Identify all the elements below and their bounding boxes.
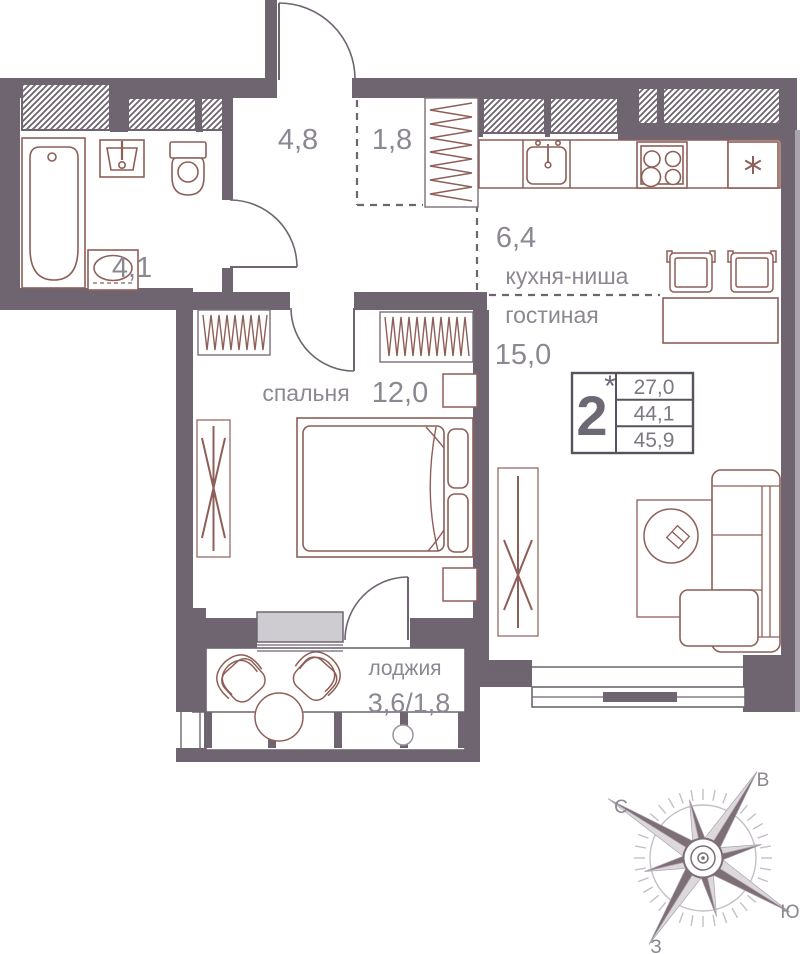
floor-plan-canvas: 2 * 27,0 44,1 45,9 4,1 4,8 1,8 6,4 кухня… — [0, 0, 800, 954]
wardrobe-hangers-icon — [425, 98, 478, 207]
floor-plan: 2 * 27,0 44,1 45,9 4,1 4,8 1,8 6,4 кухня… — [0, 0, 800, 954]
kitchen-label: кухня-ниша — [506, 263, 629, 289]
entrance-door — [279, 3, 355, 80]
bed-icon — [297, 418, 473, 557]
stool-icon — [667, 251, 776, 292]
apartment-stats-box: 2 * 27,0 44,1 45,9 — [572, 370, 693, 453]
rooms-count: 2 — [576, 384, 607, 447]
bathroom-area: 4,1 — [112, 252, 152, 284]
stat-living-area: 27,0 — [634, 376, 675, 399]
sink-icon — [100, 140, 144, 177]
living-label: гостиная — [505, 302, 599, 328]
coffee-table-icon — [644, 509, 698, 563]
wardrobe-hangers-icon — [198, 310, 270, 355]
stove-icon — [637, 142, 687, 188]
fridge-icon — [728, 142, 778, 188]
closet-area: 1,8 — [372, 124, 412, 156]
bathtub-icon — [22, 138, 85, 288]
stat-total-area: 45,9 — [634, 429, 675, 452]
kitchen-sink-icon — [527, 141, 566, 184]
wardrobe-hangers-icon — [380, 312, 473, 362]
loggia-area: 3,6/1,8 — [368, 688, 451, 718]
toilet-icon — [170, 142, 206, 195]
note-mark: * — [604, 370, 616, 403]
hall-area: 4,8 — [278, 124, 318, 156]
drying-rack-icon — [498, 468, 538, 636]
bedroom-door — [291, 308, 354, 371]
sofa-icon — [680, 470, 780, 652]
compass-north: С — [614, 797, 628, 818]
balcony-door — [345, 577, 408, 640]
bedroom-area: 12,0 — [372, 377, 428, 409]
bathroom-door — [230, 200, 297, 267]
loggia-table — [255, 693, 303, 741]
loggia-light — [393, 725, 413, 745]
stat-area-without-loggia: 44,1 — [634, 403, 675, 426]
compass-rose-icon: С В Ю З — [554, 712, 800, 954]
compass-east: В — [757, 770, 770, 791]
compass-west: З — [650, 937, 661, 954]
living-area: 15,0 — [495, 339, 551, 371]
drying-rack-icon — [197, 420, 230, 557]
bedroom-window-sill — [257, 612, 343, 651]
loggia-label: лоджия — [368, 657, 441, 680]
bar-table-icon — [663, 298, 778, 343]
compass-south: Ю — [780, 902, 799, 923]
kitchen-area: 6,4 — [496, 222, 536, 254]
bedroom-label: спальня — [262, 380, 349, 406]
